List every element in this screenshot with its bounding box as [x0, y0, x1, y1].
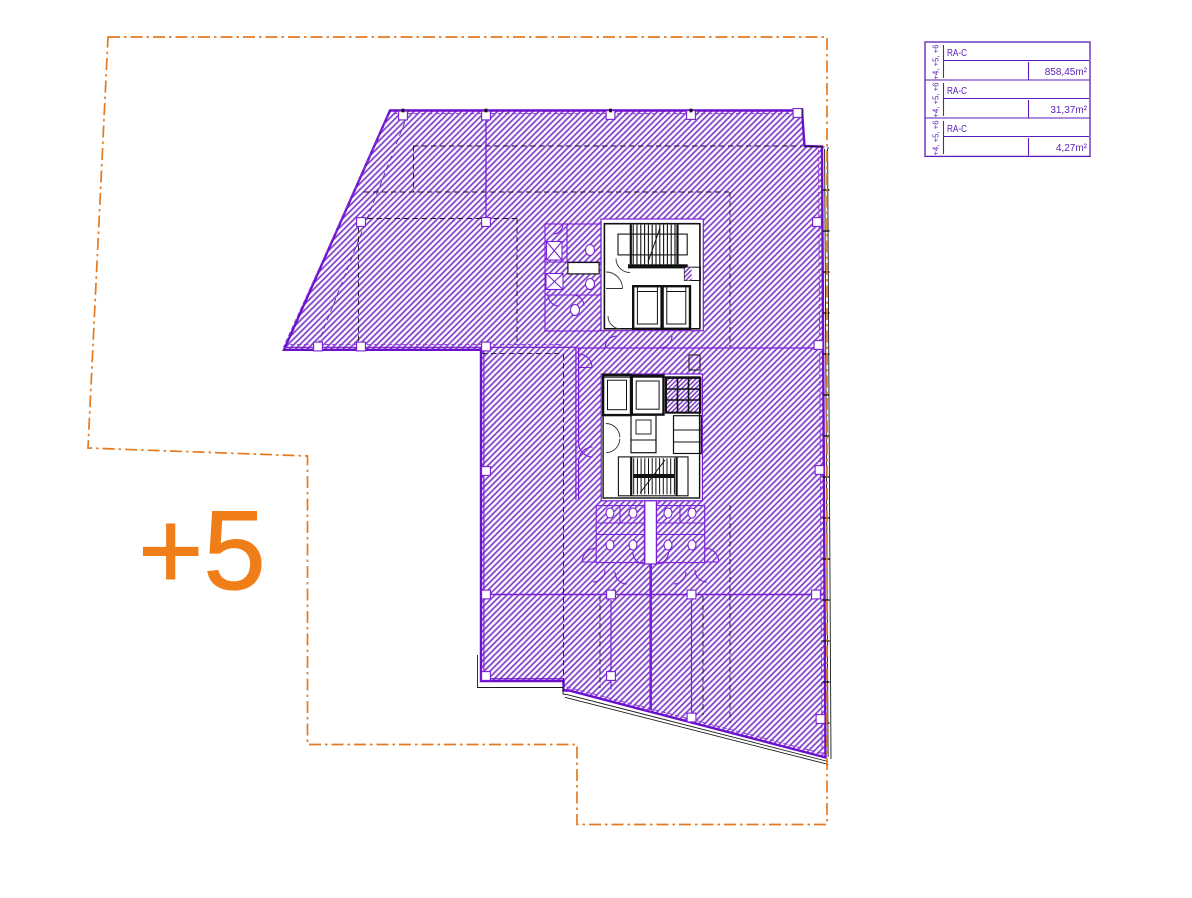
svg-text:31,37m²: 31,37m²	[1050, 105, 1087, 116]
svg-text:+4, +5, +6: +4, +5, +6	[931, 120, 941, 155]
svg-text:RA-C: RA-C	[947, 85, 967, 97]
svg-text:RA-C: RA-C	[947, 123, 967, 135]
svg-text:4,27m²: 4,27m²	[1056, 143, 1088, 154]
svg-text:+4, +5, +6: +4, +5, +6	[931, 82, 941, 117]
svg-text:RA-C: RA-C	[947, 47, 967, 59]
svg-text:858,45m²: 858,45m²	[1045, 67, 1088, 78]
svg-text:+4, +5, +6: +4, +5, +6	[931, 44, 941, 79]
svg-text:+5: +5	[138, 488, 266, 613]
